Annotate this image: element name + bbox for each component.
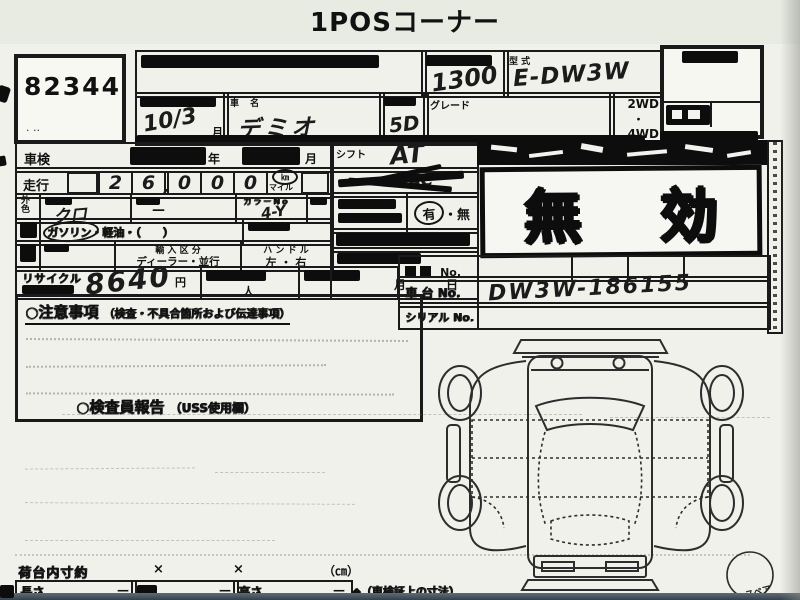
interior-label-redaction: [666, 105, 710, 125]
car-rocker-left: [447, 425, 460, 482]
car-detail-circle-left: [552, 358, 563, 369]
right-edge-shade: [780, 0, 800, 600]
equipment-no: ・無: [444, 204, 470, 223]
bar-row-redaction: [336, 233, 470, 246]
shift-value: AT: [389, 139, 425, 171]
car-detail-circle-right: [614, 358, 625, 369]
notes-heading: ○注意事項 （検査・不具合箇所および伝達事項）: [25, 301, 290, 325]
shaken-year-redaction: [130, 147, 206, 165]
drive-2wd: 2WD: [627, 97, 659, 111]
inner-dims-unit: （㎝）: [323, 562, 359, 579]
inspector-line-3: [25, 467, 195, 469]
inner-dims-x2: ×: [233, 562, 244, 577]
lot-marks: · ··: [26, 124, 40, 137]
shaken-label: 車検: [24, 149, 50, 168]
mileage-digit-3: 0: [167, 171, 202, 195]
notes-heading-sub: （検査・不具合箇所および伝達事項）: [103, 307, 290, 320]
serial-vdiv: [477, 304, 479, 328]
mileage-digit-4: 0: [200, 171, 235, 195]
recycle-sub-redaction: [22, 285, 74, 294]
score-divider: [664, 101, 760, 103]
score-vdivider: [710, 103, 712, 127]
invalid-stamp: 無 効: [480, 165, 763, 258]
import-row-left-redaction: [20, 244, 36, 262]
recycle-unit: 円: [175, 274, 186, 290]
repaint-dash: —: [152, 203, 165, 218]
scan-bottom-left-mark: [0, 585, 14, 598]
mileage-empty-box: [67, 172, 98, 194]
mileage-digit-2: 6: [131, 171, 166, 195]
first-registration-value: 10/3: [141, 104, 198, 138]
car-name-label: 車 名: [230, 96, 263, 109]
inner-dims-label: 荷台内寸約: [18, 562, 88, 581]
page-title: 1POSコーナー: [255, 2, 555, 32]
doors-value: 5D: [388, 110, 421, 137]
scan-bottom-strip: [0, 593, 800, 600]
equipment-yes-circled: 有: [413, 199, 445, 226]
mileage-empty-box-2: [301, 172, 329, 194]
car-body: [528, 356, 652, 568]
car-rocker-right: [720, 425, 733, 482]
serial-no-row: シリアル No.: [398, 302, 771, 330]
equipment-redaction-bar: [477, 140, 767, 165]
invalid-stamp-char-1: 無: [524, 170, 583, 255]
mileage-label: 走行: [23, 175, 49, 194]
car-front-rack: [514, 340, 667, 353]
grade-label: グレード: [430, 97, 470, 112]
inspector-line-5: [25, 502, 355, 505]
fuel-label-redaction: [20, 222, 37, 238]
capacity-label-redaction: [206, 270, 266, 281]
import-row-small-redaction: [44, 244, 69, 252]
notes-heading-main: ○注意事項: [25, 303, 98, 321]
inner-dims-row: 荷台内寸約 × × （㎝）: [15, 558, 360, 580]
recycle-label: リサイクル: [22, 270, 81, 286]
car-diagram: スペア: [430, 332, 798, 600]
shift-label: シフト: [336, 146, 366, 161]
notes-line-1: [26, 338, 408, 342]
equipment-label-redaction-2: [338, 213, 402, 223]
invalid-stamp-char-2: 効: [660, 169, 719, 254]
interior-color2-redaction: [248, 222, 290, 231]
owner-history-label-redaction: [141, 55, 379, 68]
car-rear-window: [551, 515, 629, 545]
lot-number: 82344: [24, 72, 116, 101]
equipment-vdiv: [406, 194, 408, 232]
model-code-cell: 型 式 E-DW3W: [503, 50, 666, 98]
owner-history-cell: [135, 50, 427, 98]
score-box: [660, 45, 764, 139]
chassis-no-value: DW3W-186155: [487, 271, 692, 307]
mileage-unit-mile: マイル: [269, 182, 293, 193]
exterior-color-label: 外色: [21, 197, 30, 216]
doors-label-redaction: [384, 97, 416, 106]
interior-color-label-redaction: [310, 197, 327, 205]
mileage-digit-1: 2: [98, 171, 133, 195]
car-windshield: [536, 398, 644, 430]
equipment-label-redaction-1: [338, 199, 396, 209]
mileage-digit-5: 0: [233, 171, 268, 195]
shaken-year-suffix: 年: [208, 150, 220, 167]
left-edge-mark-2: [0, 155, 7, 166]
inspector-heading-sub: （USS使用欄）: [169, 401, 256, 415]
displacement-cell: 1300: [421, 50, 509, 98]
inspector-line-4: [215, 472, 325, 473]
drive-dot: ・: [633, 111, 644, 127]
car-rear-bumper: [534, 556, 646, 577]
left-edge-mark-1: [0, 85, 11, 104]
shaken-month-suffix: 月: [305, 150, 317, 167]
inner-dims-x1: ×: [153, 562, 164, 577]
auction-sheet: 1POSコーナー 82344 · ·· 1300 型 式 E-DW3W 10/3…: [0, 0, 800, 600]
inspector-line-6: [25, 540, 275, 541]
notes-line-2: [26, 364, 326, 368]
shaken-month-redaction: [242, 147, 300, 165]
lot-number-box: 82344 · ··: [14, 54, 126, 144]
car-left-door: [470, 361, 526, 550]
score-label-redaction: [682, 51, 738, 63]
